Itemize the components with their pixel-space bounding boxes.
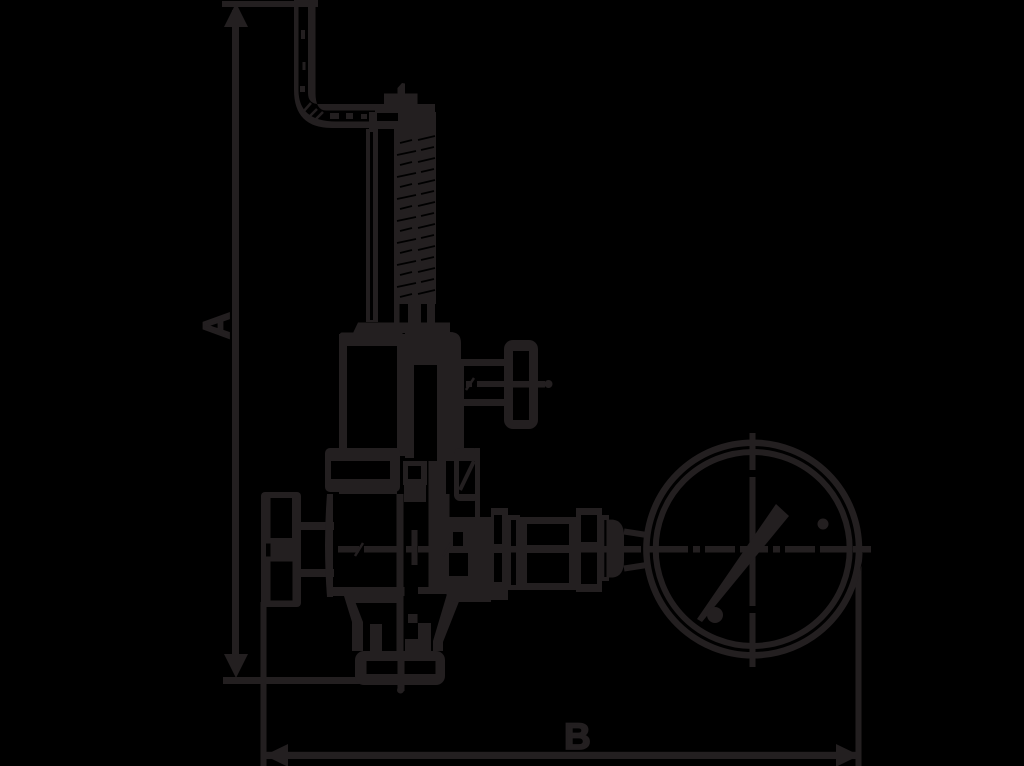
svg-text:A: A (196, 312, 237, 339)
svg-text:B: B (564, 716, 591, 757)
